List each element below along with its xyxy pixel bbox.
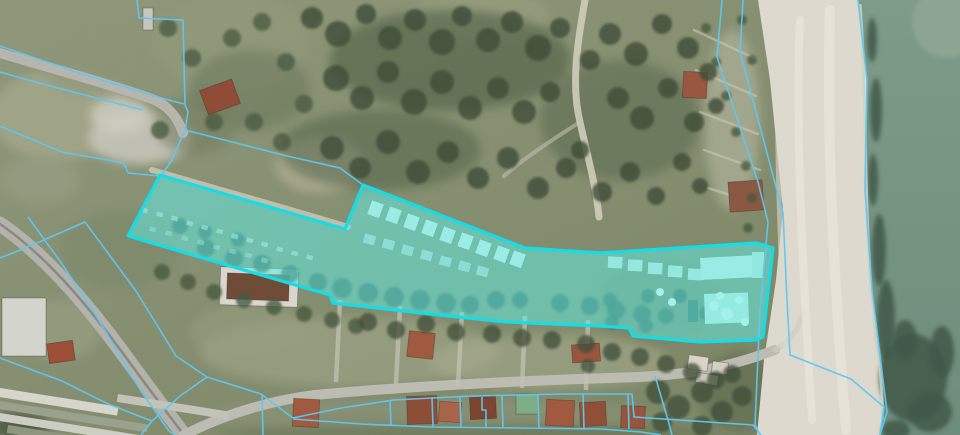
map-viewport <box>0 0 960 435</box>
map-svg[interactable] <box>0 0 960 435</box>
